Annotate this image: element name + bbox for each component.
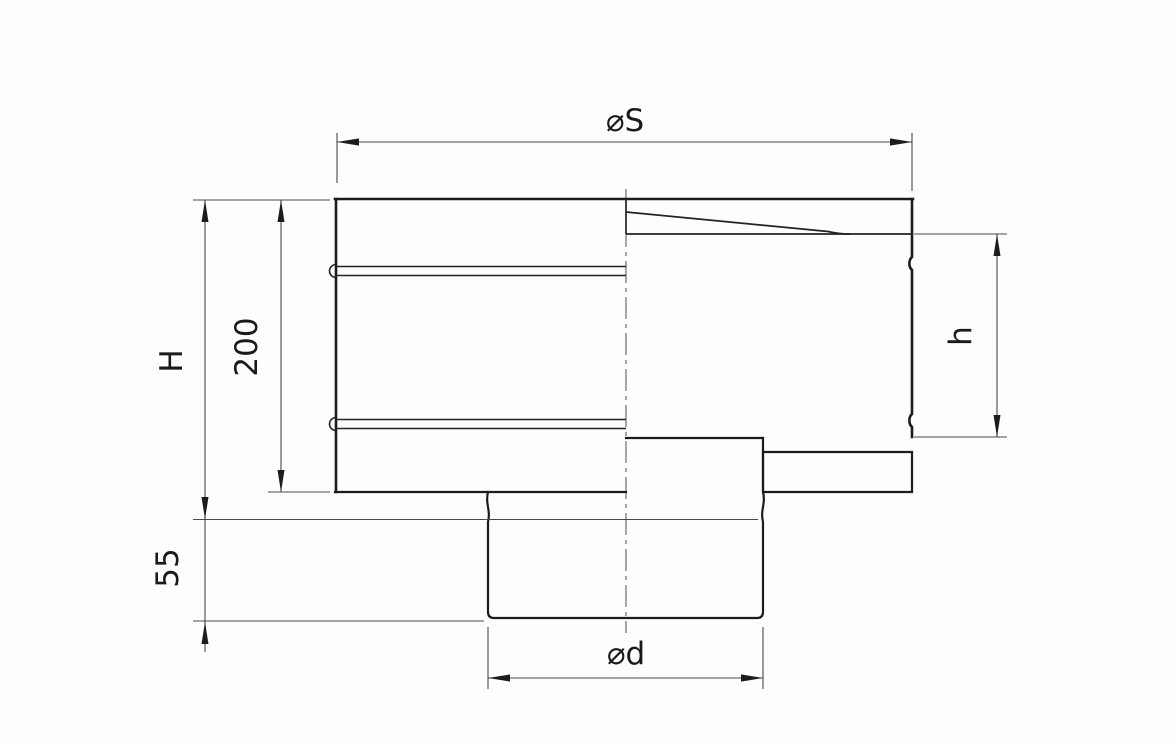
dimension-label-spigot-length: 55 bbox=[150, 548, 186, 587]
arrowhead-left bbox=[337, 138, 359, 145]
dimension-drawing: ⌀S H 55 200 h ⌀d bbox=[0, 0, 1176, 744]
arrowhead-up bbox=[278, 200, 285, 222]
part-outline bbox=[330, 199, 914, 618]
arrowhead-up-outside bbox=[202, 622, 209, 644]
cap-diagonal-fold-line bbox=[626, 212, 850, 234]
dimension-label-upper-body-height: 200 bbox=[229, 317, 265, 376]
arrowhead-down bbox=[278, 470, 285, 492]
arrowhead-down bbox=[202, 497, 209, 519]
dimension-label-total-height: H bbox=[154, 349, 190, 372]
drawing-canvas: ⌀S H 55 200 h ⌀d bbox=[0, 0, 1176, 744]
arrowhead-right bbox=[890, 138, 912, 145]
dimension-total-height-and-spigot: H 55 bbox=[150, 200, 758, 652]
dimension-label-bottom-diameter: ⌀d bbox=[607, 636, 645, 672]
arrowhead-up bbox=[202, 200, 209, 222]
dimension-label-top-diameter: ⌀S bbox=[606, 103, 644, 139]
arrowhead-up bbox=[994, 234, 1001, 256]
dimension-label-shell-height: h bbox=[943, 326, 979, 346]
dimension-bottom-diameter: ⌀d bbox=[488, 627, 763, 689]
arrowhead-down bbox=[994, 415, 1001, 437]
arrowhead-right bbox=[741, 674, 763, 681]
dimension-upper-body-height: 200 bbox=[229, 200, 330, 492]
dimension-shell-height: h bbox=[914, 234, 1007, 437]
arrowhead-left bbox=[488, 674, 510, 681]
right-collar-outline bbox=[763, 452, 912, 492]
dimension-top-diameter: ⌀S bbox=[337, 103, 912, 191]
